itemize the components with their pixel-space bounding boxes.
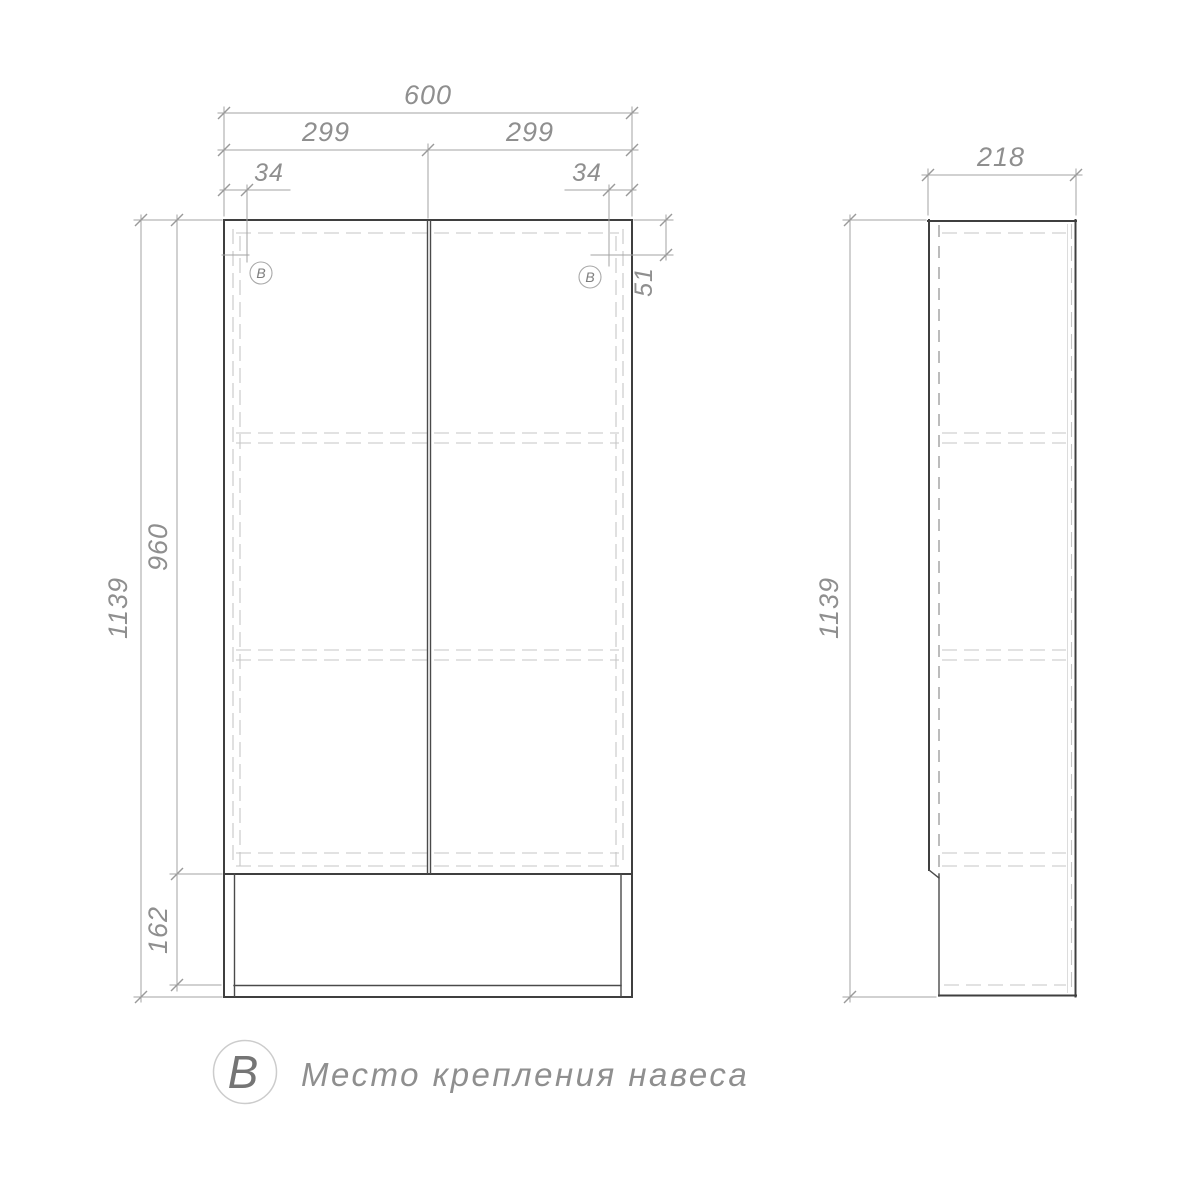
dim-height-total-front: 1139 [103, 577, 133, 639]
side-view-hidden-lines [939, 224, 1072, 993]
legend-description: Место крепления навеса [301, 1056, 749, 1093]
side-dimensions: 218 1139 [814, 142, 1082, 1003]
front-dimensions-left: 1139 960 162 [103, 214, 222, 1003]
cabinet-drawing-svg: 600 299 299 34 34 51 В В [0, 0, 1200, 1200]
dim-width-total: 600 [404, 80, 452, 110]
dim-mount-offset-top: 51 [630, 267, 658, 297]
mount-callout-left: В [256, 265, 265, 281]
dim-width-door-left: 299 [301, 117, 350, 147]
mount-callout-right: В [585, 269, 594, 285]
dim-height-doors: 960 [143, 523, 173, 571]
side-view [928, 220, 1076, 997]
dim-mount-offset-left: 34 [254, 159, 284, 187]
technical-drawing-page: 600 299 299 34 34 51 В В [0, 0, 1200, 1200]
legend-symbol: В [228, 1046, 259, 1098]
dim-height-niche: 162 [143, 906, 173, 954]
front-view [224, 220, 632, 997]
dim-mount-offset-right: 34 [572, 159, 602, 187]
front-dimensions-top: 600 299 299 34 34 51 В В [218, 80, 673, 297]
legend: В Место крепления навеса [214, 1041, 750, 1104]
dim-width-door-right: 299 [505, 117, 554, 147]
dim-depth: 218 [976, 142, 1025, 172]
side-view-outline [928, 220, 1076, 997]
front-view-outline [224, 220, 632, 997]
dim-height-total-side: 1139 [814, 577, 844, 639]
